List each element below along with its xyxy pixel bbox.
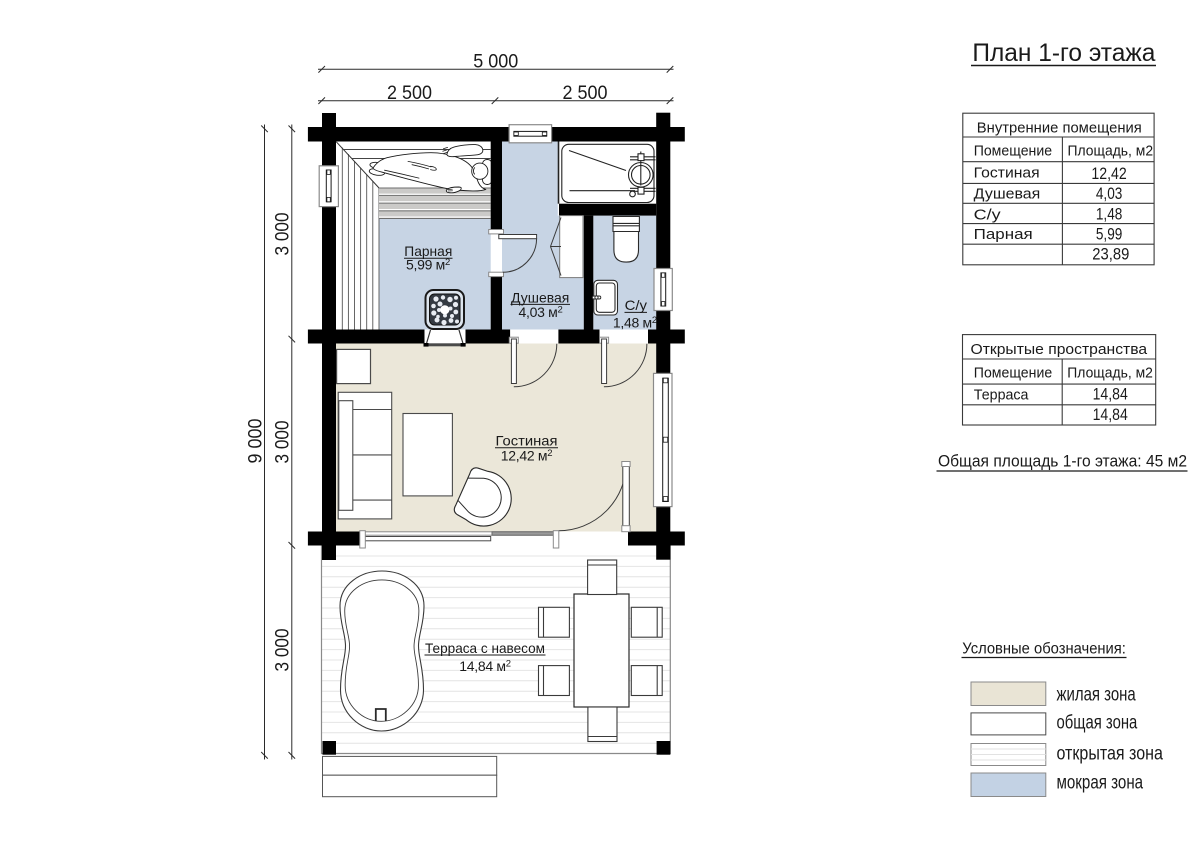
svg-text:3 000: 3 000 <box>273 421 294 464</box>
svg-text:Общая площадь 1-го этажа: 45 м: Общая площадь 1-го этажа: 45 м2 <box>938 453 1187 471</box>
svg-text:открытая зона: открытая зона <box>1057 744 1164 765</box>
svg-text:3 000: 3 000 <box>273 629 294 672</box>
svg-text:1,48 м2: 1,48 м2 <box>613 315 657 331</box>
svg-text:5,99: 5,99 <box>1096 226 1123 244</box>
svg-text:План 1-го этажа: План 1-го этажа <box>972 39 1155 67</box>
svg-text:1,48: 1,48 <box>1096 206 1123 224</box>
svg-text:Помещение: Помещение <box>974 365 1052 381</box>
svg-text:жилая зона: жилая зона <box>1057 685 1137 706</box>
svg-text:14,84: 14,84 <box>1093 406 1128 424</box>
svg-text:9 000: 9 000 <box>246 419 267 464</box>
svg-text:Гостиная: Гостиная <box>496 432 558 448</box>
svg-text:С/у: С/у <box>974 208 1002 224</box>
svg-text:Терраса: Терраса <box>974 388 1030 404</box>
svg-text:5,99 м2: 5,99 м2 <box>406 257 450 273</box>
svg-text:12,42: 12,42 <box>1091 165 1126 183</box>
svg-text:Открытые пространства: Открытые пространства <box>971 342 1149 358</box>
svg-text:Терраса с навесом: Терраса с навесом <box>425 640 545 656</box>
svg-text:Площадь, м2: Площадь, м2 <box>1067 365 1153 381</box>
svg-text:Помещение: Помещение <box>974 144 1052 160</box>
svg-text:С/у: С/у <box>625 297 647 313</box>
svg-text:14,84: 14,84 <box>1093 386 1128 404</box>
svg-text:Душевая: Душевая <box>974 187 1041 203</box>
svg-text:Внутренние помещения: Внутренние помещения <box>977 121 1142 137</box>
svg-text:Условные обозначения:: Условные обозначения: <box>962 641 1126 658</box>
svg-text:14,84 м2: 14,84 м2 <box>459 658 510 674</box>
svg-text:2 500: 2 500 <box>563 83 608 104</box>
svg-text:Площадь, м2: Площадь, м2 <box>1068 144 1154 160</box>
svg-text:4,03 м2: 4,03 м2 <box>519 304 563 320</box>
svg-text:3 000: 3 000 <box>273 213 294 256</box>
svg-text:12,42 м2: 12,42 м2 <box>501 447 552 463</box>
svg-text:2 500: 2 500 <box>387 83 432 104</box>
svg-text:Парная: Парная <box>974 227 1033 243</box>
svg-text:5 000: 5 000 <box>473 52 518 73</box>
svg-text:общая зона: общая зона <box>1057 712 1138 733</box>
svg-text:Гостиная: Гостиная <box>974 165 1040 181</box>
svg-text:4,03: 4,03 <box>1096 185 1123 203</box>
svg-text:мокрая зона: мокрая зона <box>1057 773 1144 794</box>
svg-text:23,89: 23,89 <box>1092 246 1129 264</box>
